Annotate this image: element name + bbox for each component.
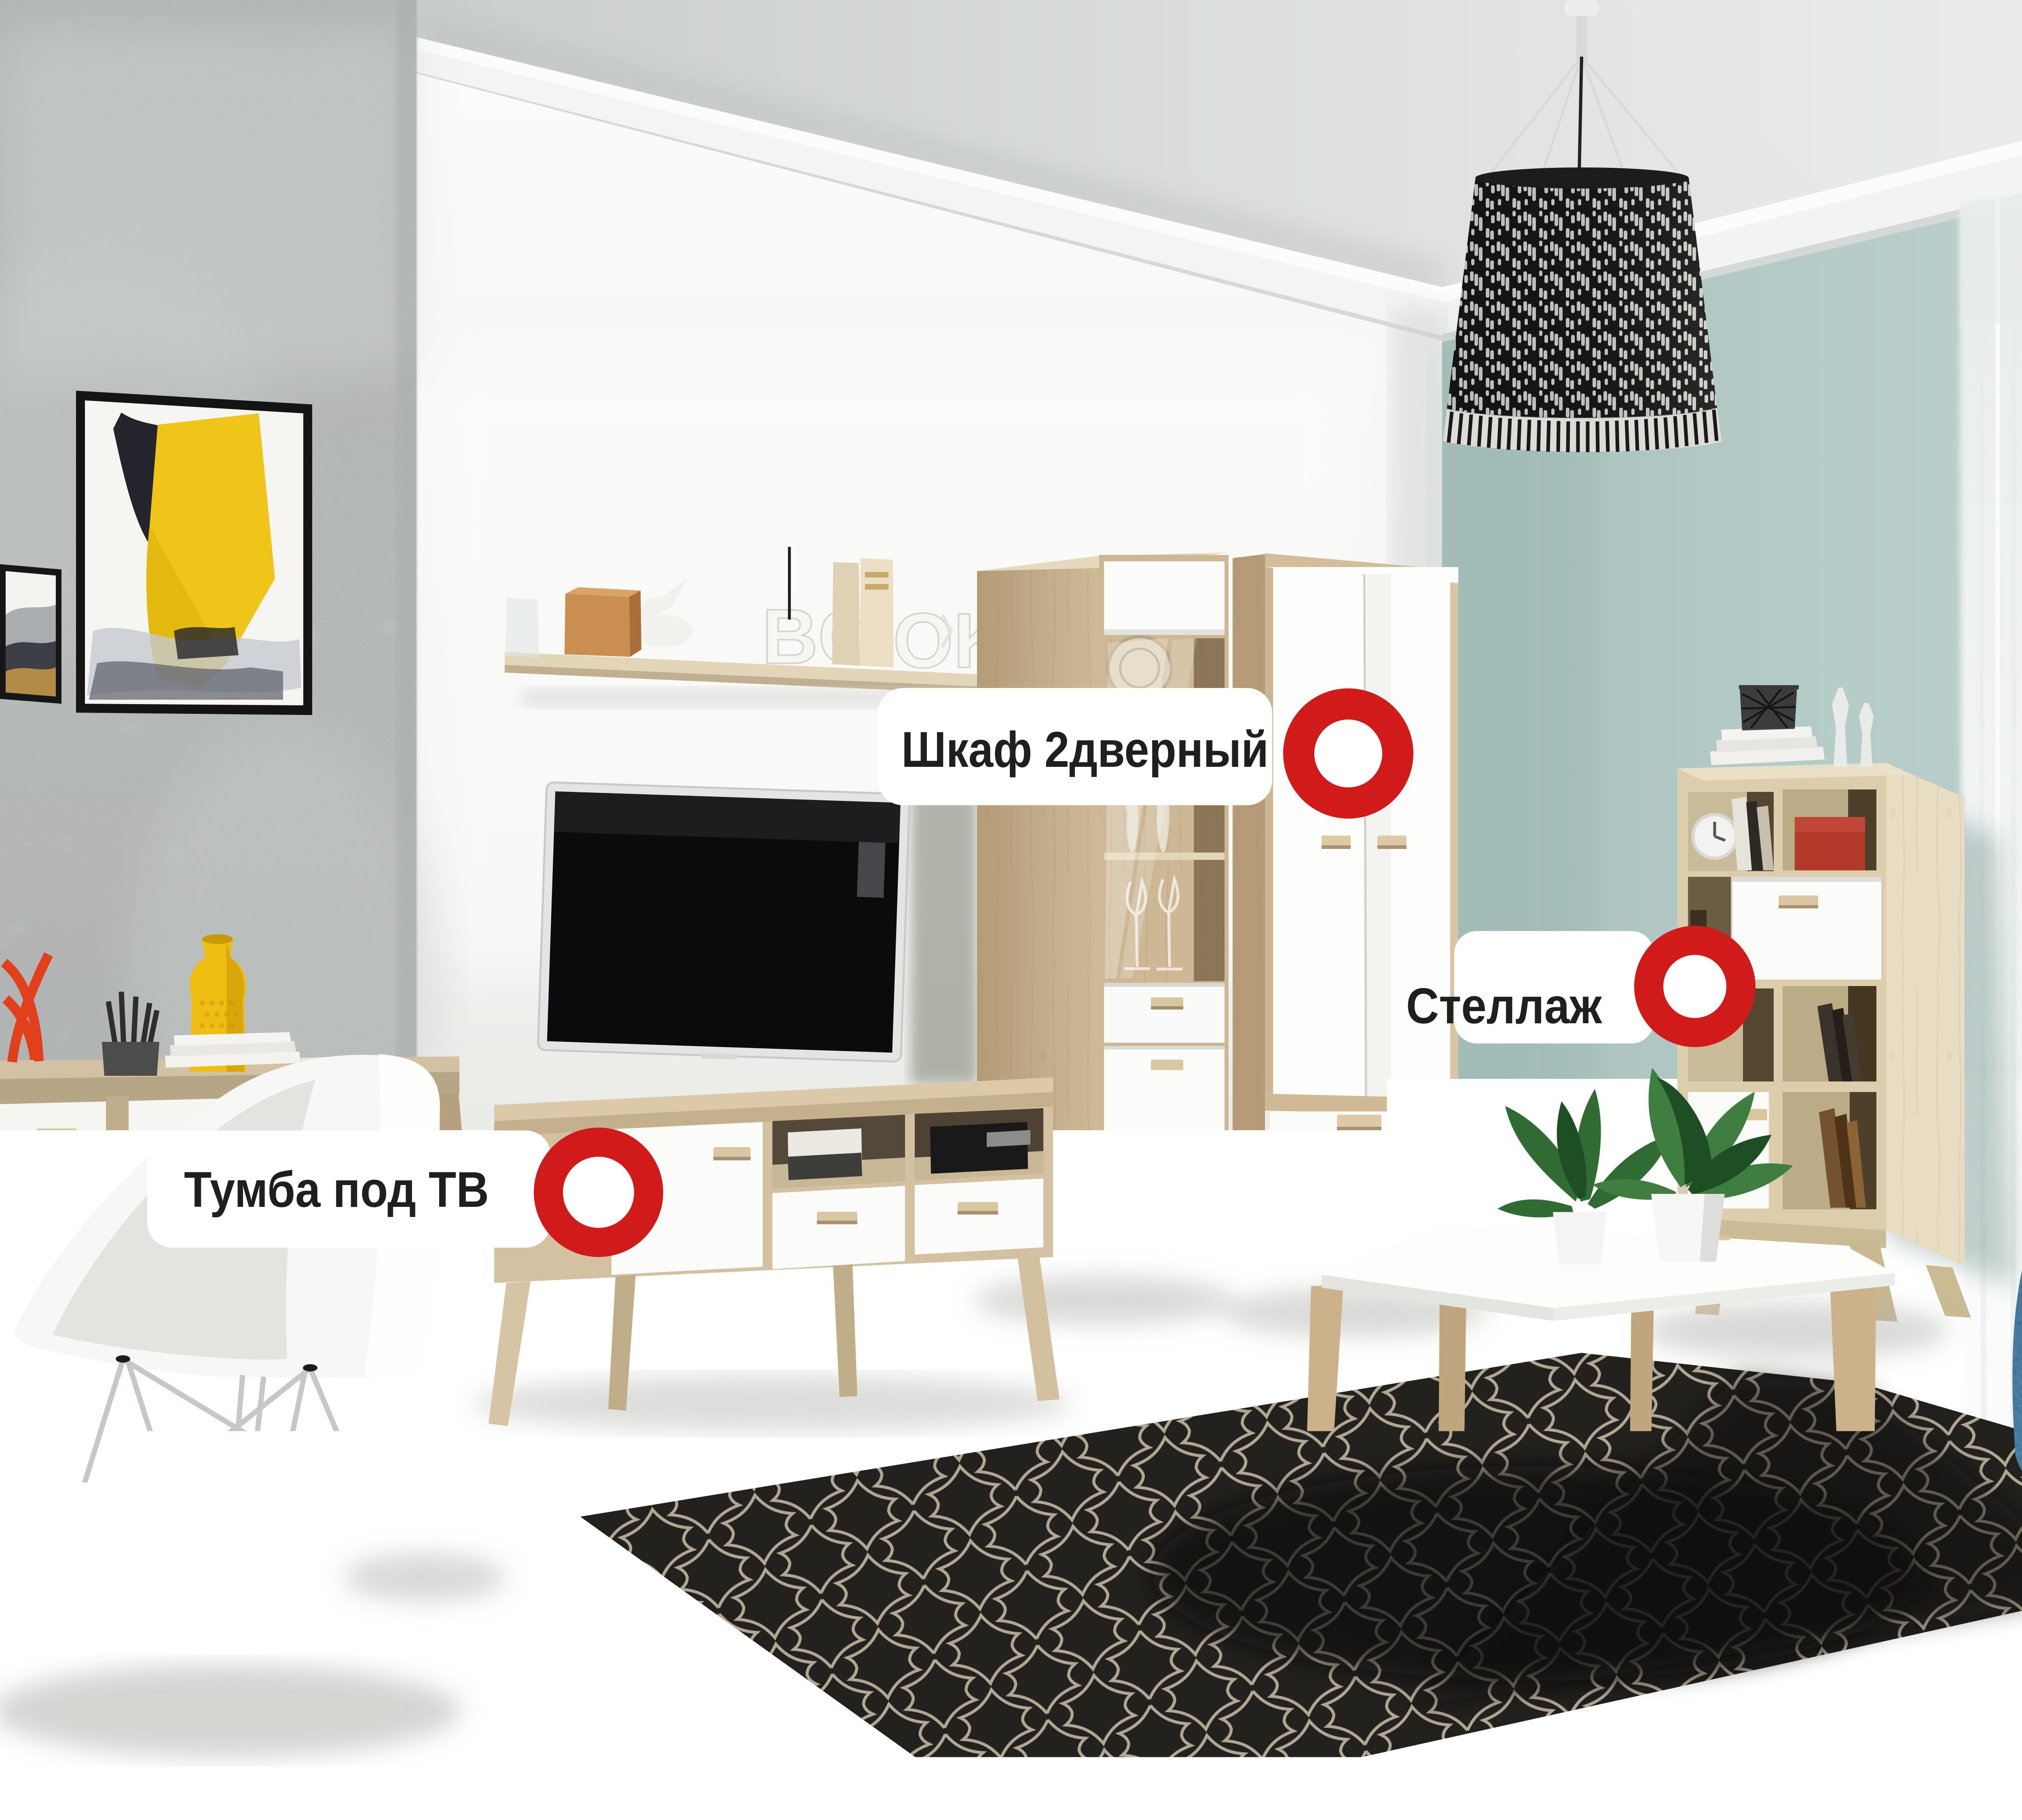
svg-text:Шкаф 2дверный: Шкаф 2дверный (901, 722, 1269, 778)
svg-text:Тумба под ТВ: Тумба под ТВ (184, 1162, 489, 1218)
svg-text:Стеллаж: Стеллаж (1406, 978, 1602, 1034)
